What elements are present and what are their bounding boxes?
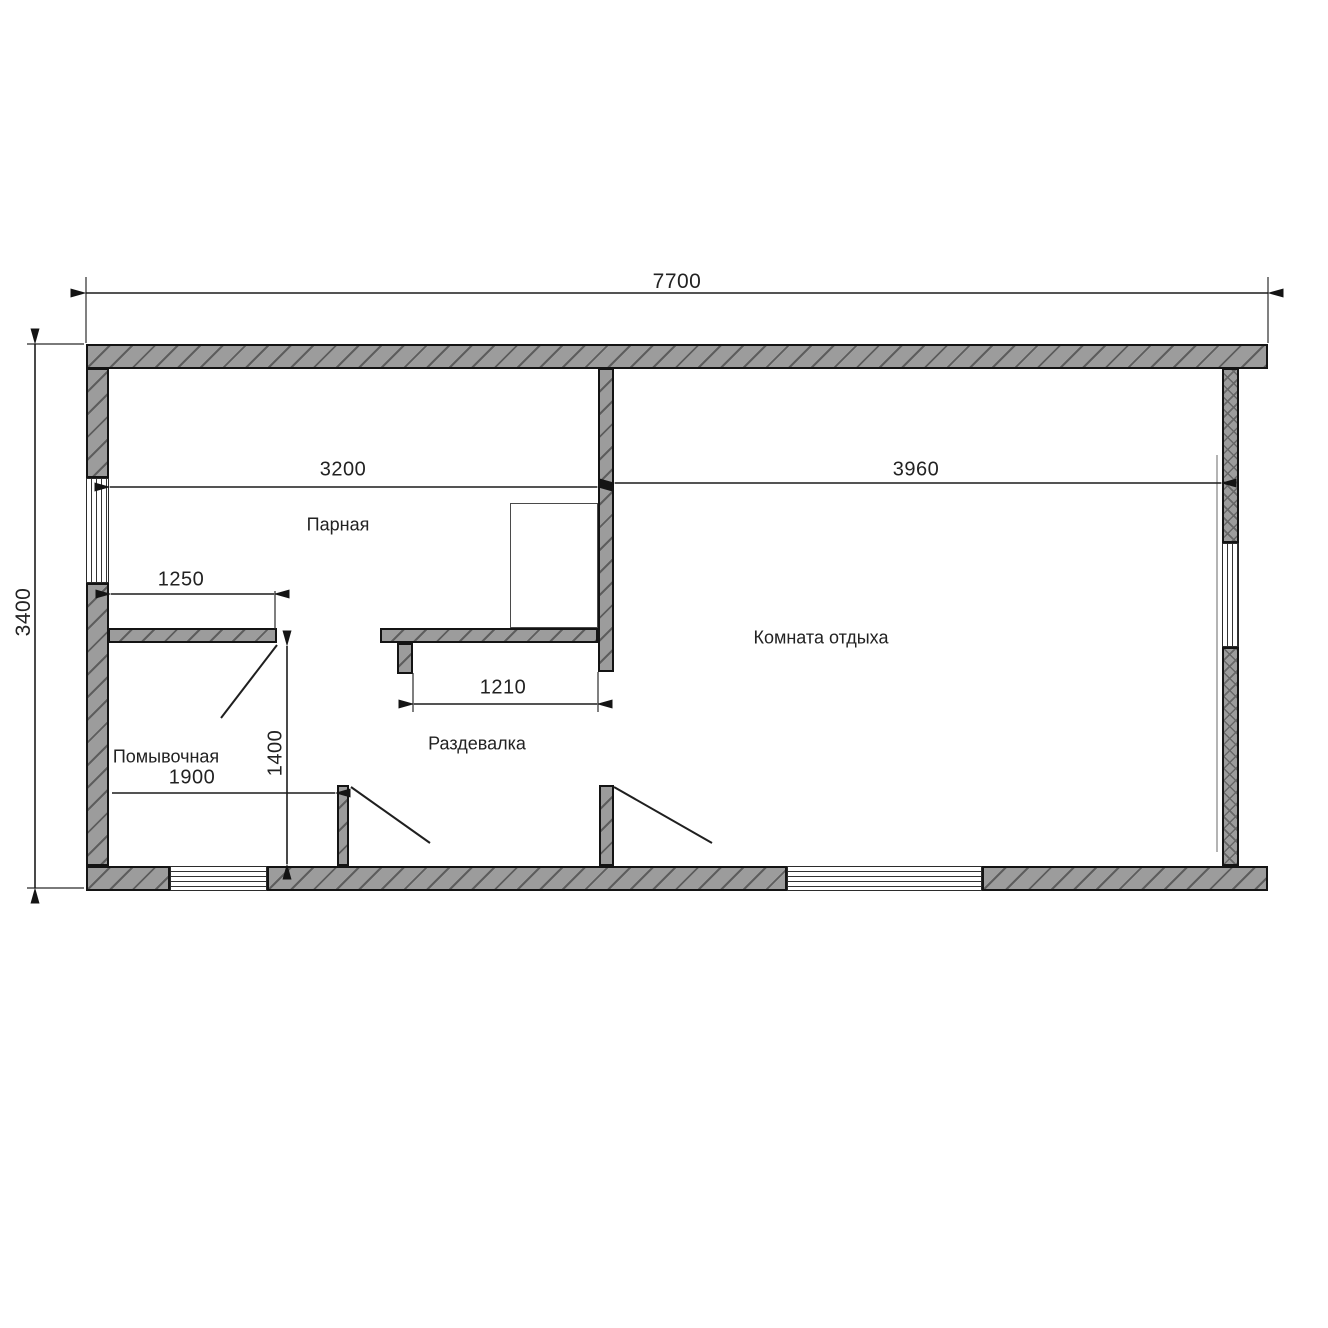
dim-overall-width: 7700 [653, 270, 702, 294]
dressing-partition-wall [380, 628, 598, 643]
bottom-wall-segment-2 [267, 866, 787, 891]
door-swing-washroom [221, 645, 277, 718]
bottom-window-left [170, 866, 267, 891]
left-wall-segment-1 [86, 368, 109, 478]
dim-rest-room-width: 3960 [893, 459, 940, 482]
right-wall-segment-1 [1222, 368, 1239, 543]
left-wall-segment-2 [86, 583, 109, 866]
door-swing-entry-1 [351, 787, 430, 843]
door-swing-entry-2 [614, 787, 712, 843]
dim-steam-room-width: 3200 [320, 459, 367, 482]
entry-door-jamb-2 [599, 785, 614, 866]
right-wall-window [1222, 543, 1239, 647]
steam-room-partition-wall [598, 368, 614, 672]
bottom-wall-segment-1 [86, 866, 170, 891]
bottom-wall-segment-3 [982, 866, 1268, 891]
dressing-partition-stub [397, 643, 413, 674]
left-wall-window [86, 478, 109, 583]
room-label-steam-room: Парная [307, 515, 370, 536]
bottom-window-right [787, 866, 982, 891]
top-wall [86, 344, 1268, 369]
room-label-washroom: Помывочная [113, 747, 219, 768]
dim-washroom-width: 1900 [169, 767, 216, 790]
dim-dressing-depth: 1400 [265, 730, 288, 777]
stove-outline [510, 503, 598, 628]
room-label-rest-room: Комната отдыха [754, 628, 889, 649]
floor-plan-canvas: 7700 3400 3200 3960 1250 1400 1210 1900 … [0, 0, 1328, 1328]
washroom-partition-wall [108, 628, 277, 643]
dimension-lines [35, 293, 1268, 888]
room-label-dressing-room: Раздевалка [428, 734, 526, 755]
right-wall-segment-2 [1222, 647, 1239, 866]
dim-washroom-wall: 1250 [158, 569, 205, 592]
entry-door-jamb-1 [337, 785, 349, 866]
dim-dressing-opening: 1210 [480, 677, 527, 700]
dim-overall-height: 3400 [12, 588, 36, 637]
dimension-linework [0, 0, 1328, 1328]
